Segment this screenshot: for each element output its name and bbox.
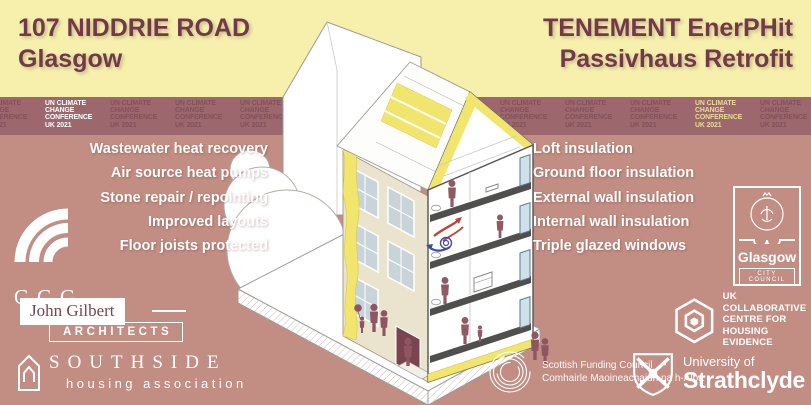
cop26-banner: UN CLIMATECHANGECONFERENCEUK 2021UN CLIM… bbox=[0, 97, 811, 135]
title-left-line2: Glasgow bbox=[18, 44, 250, 75]
cop26-banner-cell: UN CLIMATECHANGECONFERENCEUK 2021 bbox=[370, 97, 435, 135]
southside-name: SOUTHSIDE bbox=[49, 352, 247, 374]
heat-recovery-arrows bbox=[426, 217, 463, 251]
poster-canvas: { "header": { "left": { "line1": "107 NI… bbox=[0, 0, 811, 405]
strathclyde-logo: University of Strathclyde bbox=[632, 350, 805, 396]
cop26-banner-cell: UN CLIMATECHANGECONFERENCEUK 2021 bbox=[695, 97, 760, 135]
ukcche-line1: UK COLLABORATIVE bbox=[723, 291, 811, 314]
city-council-label: CITY COUNCIL bbox=[739, 268, 795, 285]
cop26-banner-cell: UN CLIMATECHANGECONFERENCEUK 2021 bbox=[175, 97, 240, 135]
cop26-banner-cell: UN CLIMATECHANGECONFERENCEUK 2021 bbox=[630, 97, 695, 135]
window-mullions bbox=[352, 175, 414, 319]
glasgow-label: Glasgow bbox=[735, 250, 799, 265]
cop26-banner-cell: UN CLIMATECHANGECONFERENCEUK 2021 bbox=[760, 97, 811, 135]
title-right: TENEMENT EnerPHit Passivhaus Retrofit bbox=[543, 13, 793, 75]
cop26-banner-cell: UN CLIMATECHANGECONFERENCEUK 2021 bbox=[435, 97, 500, 135]
feature-item: Ground floor insulation bbox=[533, 161, 694, 185]
facade-sandstone bbox=[343, 150, 431, 382]
section-interior bbox=[426, 145, 533, 382]
ccg-logo: CCG bbox=[14, 196, 124, 310]
ccg-arcs-icon bbox=[14, 196, 76, 276]
ukcche-logo: UK COLLABORATIVE CENTRE FOR HOUSING EVID… bbox=[674, 291, 811, 349]
cop26-banner-cell: UN CLIMATECHANGECONFERENCEUK 2021 bbox=[0, 97, 45, 135]
glasgow-city-council-logo: Glasgow CITY COUNCIL bbox=[733, 186, 801, 286]
southside-logo: SOUTHSIDE housing association bbox=[16, 352, 247, 394]
facade-windows bbox=[352, 168, 414, 326]
feature-item: External wall insulation bbox=[533, 186, 694, 210]
corner-insulation-ribbon bbox=[343, 150, 359, 340]
furniture bbox=[474, 184, 498, 292]
ukcche-line3: HOUSING EVIDENCE bbox=[723, 326, 811, 349]
strathclyde-label: Strathclyde bbox=[683, 369, 805, 392]
cop26-banner-cell: UN CLIMATECHANGECONFERENCEUK 2021 bbox=[565, 97, 630, 135]
bathroom-fixtures bbox=[432, 205, 441, 305]
cop26-banner-cell: UN CLIMATECHANGECONFERENCEUK 2021 bbox=[45, 97, 110, 135]
feature-item: Air source heat pumps bbox=[90, 161, 268, 185]
title-left-line1: 107 NIDDRIE ROAD bbox=[18, 13, 250, 44]
house-outline-icon bbox=[16, 352, 42, 394]
shield-saltire-icon bbox=[632, 350, 674, 396]
right-feature-list: Loft insulation Ground floor insulation … bbox=[533, 137, 694, 258]
john-gilbert-architects-label: ARCHITECTS bbox=[49, 322, 183, 342]
entrance-door bbox=[396, 326, 420, 377]
southside-subtitle: housing association bbox=[66, 374, 247, 394]
cop26-banner-cell: UN CLIMATECHANGECONFERENCEUK 2021 bbox=[240, 97, 305, 135]
title-right-line1: TENEMENT EnerPHit bbox=[543, 13, 793, 44]
ukcche-line2: CENTRE FOR bbox=[723, 314, 811, 326]
hexagon-icon bbox=[674, 295, 715, 345]
triple-glazed-windows bbox=[520, 155, 530, 328]
feature-item: Wastewater heat recovery bbox=[90, 137, 268, 161]
feature-item: Internal wall insulation bbox=[533, 210, 694, 234]
john-gilbert-name: John Gilbert bbox=[20, 298, 125, 325]
cop26-banner-cell: UN CLIMATECHANGECONFERENCEUK 2021 bbox=[305, 97, 370, 135]
john-gilbert-rule bbox=[152, 310, 186, 312]
feature-item: Triple glazed windows bbox=[533, 234, 694, 258]
feature-item: Loft insulation bbox=[533, 137, 694, 161]
glasgow-crest-icon bbox=[737, 188, 797, 244]
spiral-circles-icon bbox=[487, 349, 533, 395]
title-left: 107 NIDDRIE ROAD Glasgow bbox=[18, 13, 250, 75]
floor-slabs bbox=[430, 182, 531, 363]
entrance-steps bbox=[398, 361, 431, 379]
cop26-banner-cell: UN CLIMATECHANGECONFERENCEUK 2021 bbox=[110, 97, 175, 135]
john-gilbert-architects-logo: John Gilbert ARCHITECTS bbox=[20, 298, 180, 348]
title-right-line2: Passivhaus Retrofit bbox=[543, 44, 793, 75]
cop26-banner-cell: UN CLIMATECHANGECONFERENCEUK 2021 bbox=[500, 97, 565, 135]
interior-figures bbox=[441, 180, 503, 344]
